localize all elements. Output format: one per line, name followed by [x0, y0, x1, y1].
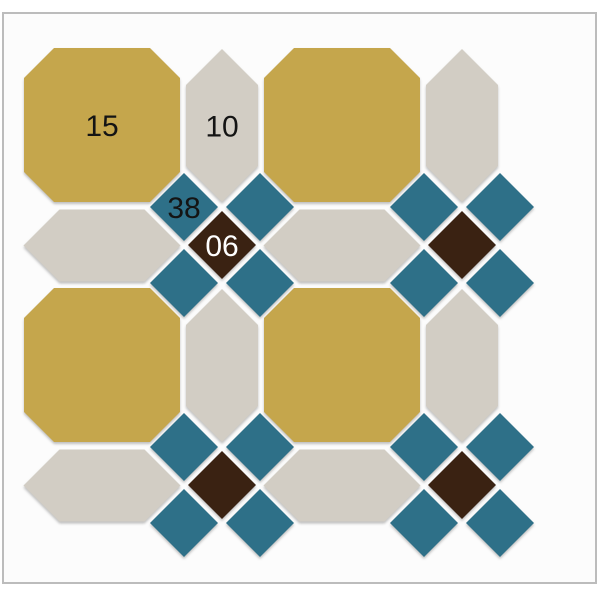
octagon-tile-3: [24, 288, 180, 442]
tile-pattern-page: 15103806: [0, 0, 600, 600]
octagon-tile-2: [264, 48, 420, 202]
tile-pattern-canvas: 15103806: [0, 0, 600, 600]
picket-color-code: 10: [205, 110, 238, 143]
octagon-color-code: 15: [85, 110, 118, 143]
octagon-tile-4: [264, 288, 420, 442]
dot-color-code: 06: [205, 230, 238, 263]
square-color-code: 38: [167, 192, 200, 225]
